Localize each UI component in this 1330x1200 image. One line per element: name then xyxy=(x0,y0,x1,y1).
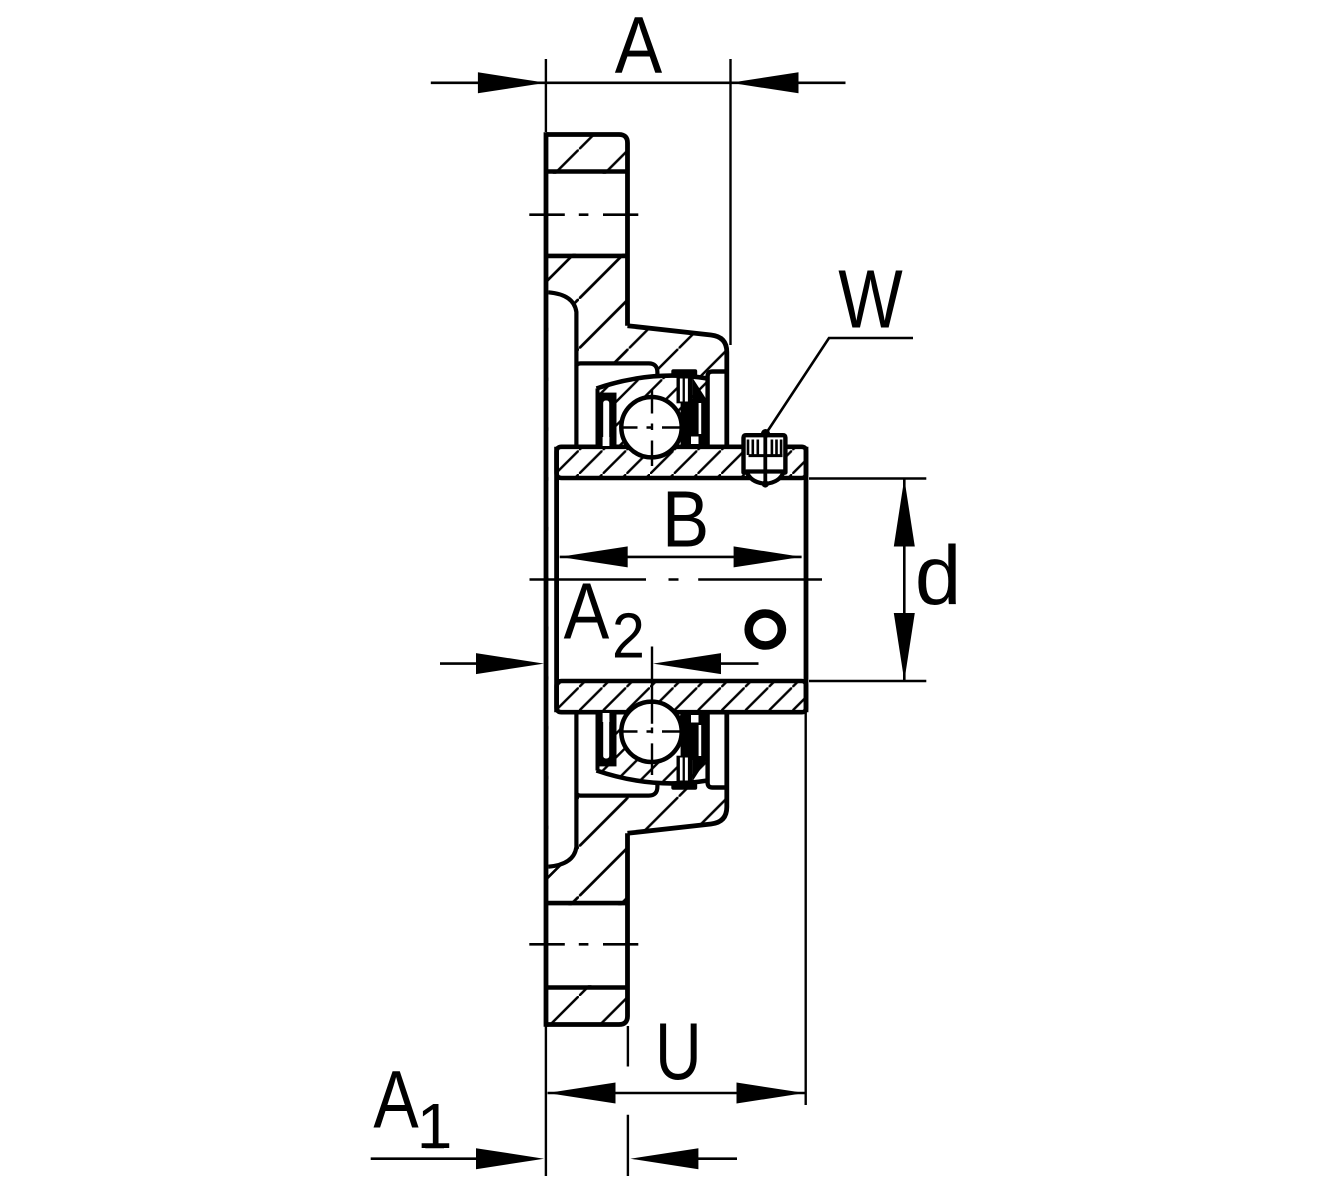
svg-text:B: B xyxy=(662,476,709,565)
svg-text:2: 2 xyxy=(612,601,645,672)
svg-text:d: d xyxy=(915,529,961,622)
svg-text:W: W xyxy=(838,253,903,346)
svg-text:A: A xyxy=(564,567,610,656)
svg-text:A: A xyxy=(373,1054,418,1145)
svg-text:1: 1 xyxy=(417,1090,453,1162)
svg-text:U: U xyxy=(655,1007,702,1096)
svg-text:A: A xyxy=(615,1,663,91)
